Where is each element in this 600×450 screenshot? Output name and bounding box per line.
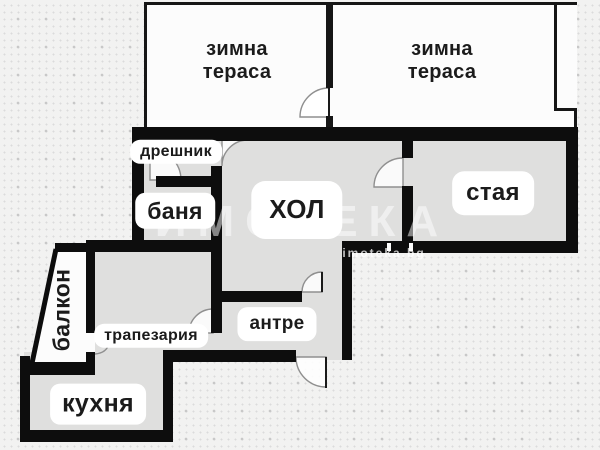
room-label-hallway: антре [237, 307, 316, 341]
terrace-left-wall [144, 2, 147, 127]
terrace-divider-wall [326, 2, 333, 88]
wall-left-lower-a [86, 247, 95, 333]
terrace-divider-stub [326, 116, 333, 127]
wall-hallway-bottom [163, 350, 296, 362]
wall-balcony-bottom [28, 362, 95, 375]
wall-left-lower-b [86, 352, 95, 375]
entrance-door-arc [296, 357, 326, 387]
room-label-living: ХОЛ [251, 181, 342, 239]
watermark-site: imoteka.bg [342, 246, 425, 260]
wall-bedroom-upper [402, 141, 413, 158]
room-label-terrace-left: зимна тераса [172, 38, 302, 84]
terrace-door-arc [300, 88, 329, 117]
room-label-terrace-right: зимна тераса [377, 38, 507, 84]
room-label-bathroom: баня [135, 193, 215, 229]
terrace-top-wall [144, 2, 577, 5]
closet-door-arc [222, 140, 248, 166]
room-label-balcony: балкон [49, 269, 76, 352]
terrace-right-wall [554, 2, 557, 110]
room-label-closet: дрешник [130, 140, 222, 164]
floor-plan: ИМОТЕКА imoteka.bg зимна тераса зимна те… [0, 0, 600, 450]
wall-right [566, 141, 578, 253]
wall-kitchen-bottom [20, 430, 173, 442]
wall-divider-mid [211, 166, 222, 333]
wall-living-hallway [222, 291, 302, 302]
room-label-dining: трапезария [94, 324, 208, 348]
room-label-kitchen: кухня [50, 384, 146, 425]
room-label-bedroom: стая [452, 171, 534, 215]
wall-balcony-top [55, 243, 88, 252]
bedroom-door-arc [374, 158, 403, 187]
wall-kitchen-right [163, 350, 173, 442]
hallway-door-arc [302, 272, 322, 292]
terrace-notch-right [574, 108, 577, 127]
